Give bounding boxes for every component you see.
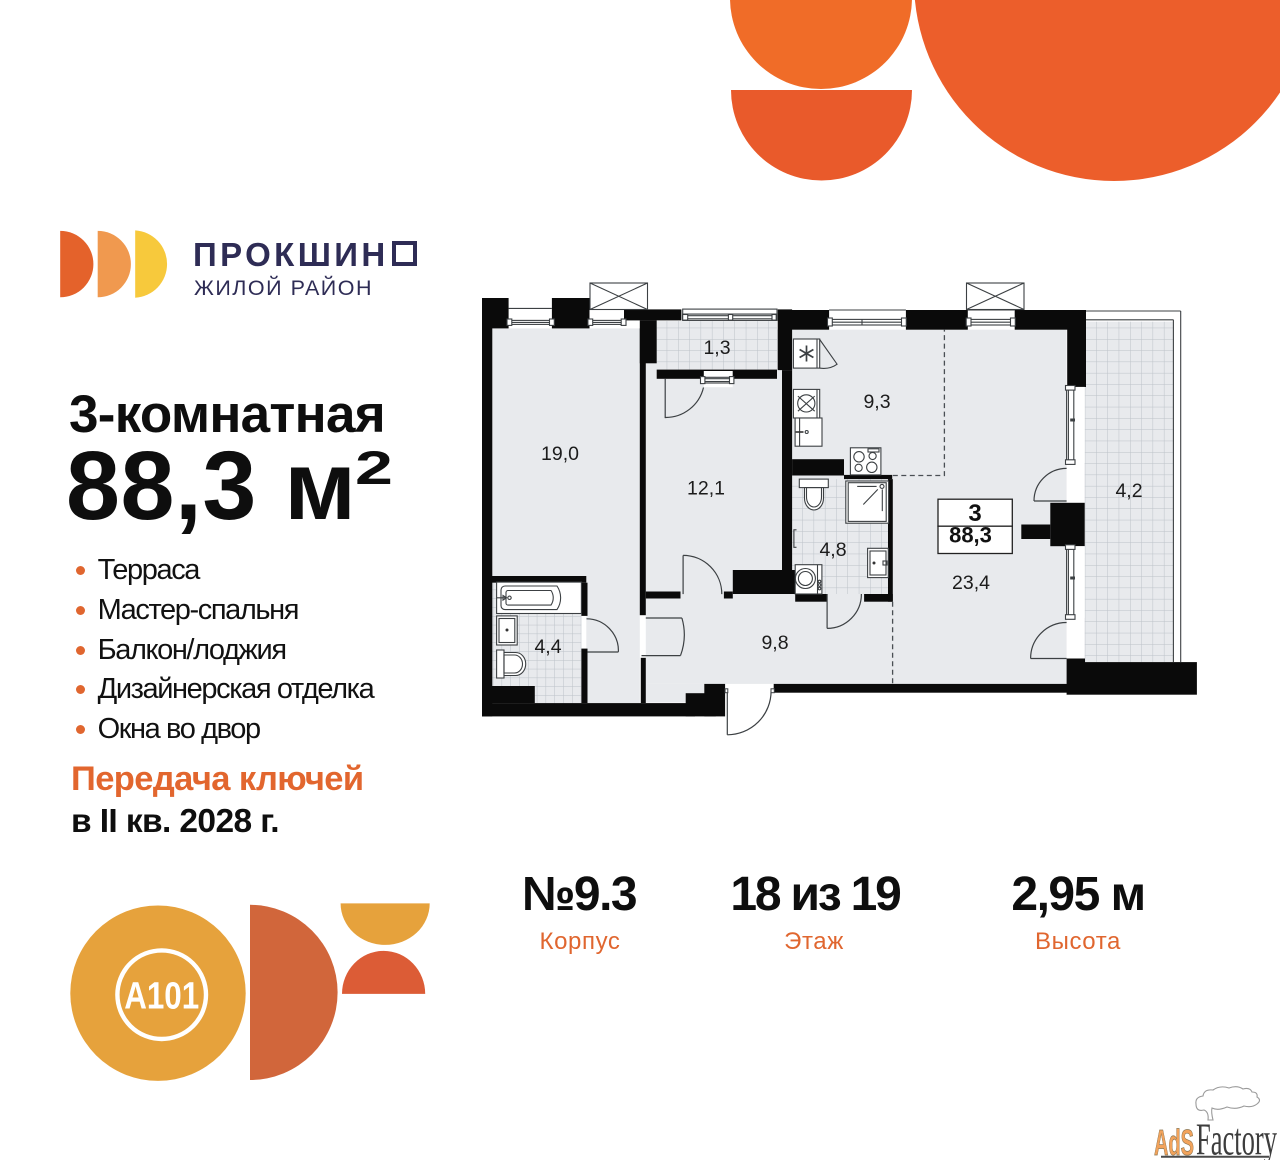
svg-text:9,3: 9,3: [863, 391, 890, 413]
svg-text:4,4: 4,4: [534, 636, 561, 658]
svg-text:1,3: 1,3: [703, 337, 730, 359]
svg-text:A101: A101: [124, 975, 199, 1017]
svg-text:AdS: AdS: [1154, 1122, 1194, 1160]
svg-text:4,8: 4,8: [819, 539, 846, 561]
svg-text:88,3: 88,3: [949, 523, 992, 548]
svg-text:12,1: 12,1: [687, 478, 725, 500]
svg-text:19,0: 19,0: [541, 443, 579, 465]
svg-text:Factory: Factory: [1196, 1114, 1277, 1160]
svg-text:9,8: 9,8: [761, 632, 788, 654]
svg-text:4,2: 4,2: [1115, 480, 1142, 502]
svg-text:23,4: 23,4: [952, 572, 990, 594]
